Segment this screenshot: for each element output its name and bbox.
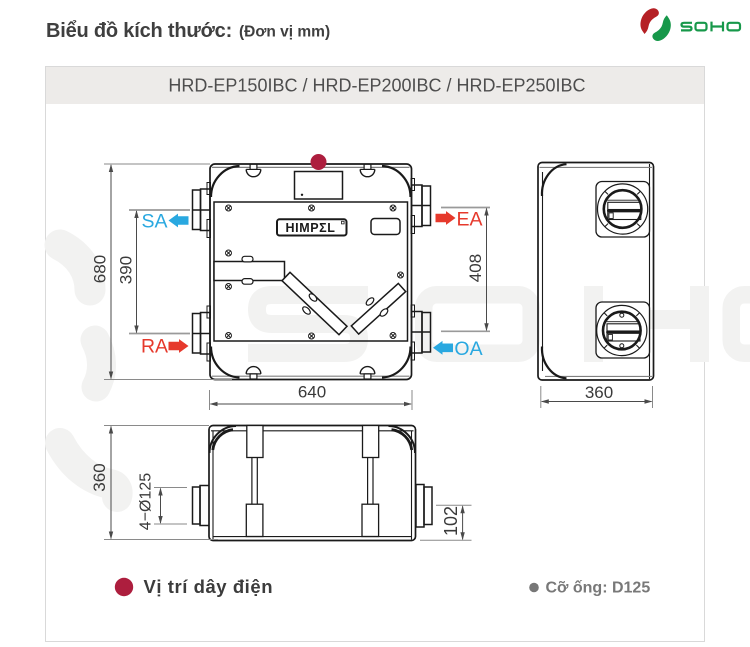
svg-text:EA: EA — [456, 209, 482, 231]
svg-text:102: 102 — [441, 506, 461, 536]
svg-text:Vị trí dây điện: Vị trí dây điện — [144, 576, 274, 597]
svg-text:HIMPΣL: HIMPΣL — [286, 221, 336, 235]
svg-text:640: 640 — [298, 383, 326, 402]
svg-text:HRD-EP150IBC / HRD-EP200IBC /: HRD-EP150IBC / HRD-EP200IBC / HRD-EP250I… — [168, 76, 585, 96]
svg-text:Cỡ ống: D125: Cỡ ống: D125 — [546, 580, 651, 597]
svg-text:OA: OA — [454, 338, 482, 360]
svg-text:360: 360 — [90, 463, 109, 491]
svg-text:SA: SA — [141, 211, 167, 233]
svg-text:390: 390 — [117, 256, 136, 284]
svg-text:Biểu đồ kích thước:: Biểu đồ kích thước: — [46, 20, 232, 42]
svg-text:360: 360 — [585, 383, 613, 402]
svg-text:4−Ø125: 4−Ø125 — [138, 473, 155, 530]
svg-text:408: 408 — [466, 254, 485, 282]
svg-text:RA: RA — [141, 336, 168, 358]
svg-text:(Đơn vị mm): (Đơn vị mm) — [239, 24, 330, 41]
svg-text:680: 680 — [91, 255, 110, 283]
